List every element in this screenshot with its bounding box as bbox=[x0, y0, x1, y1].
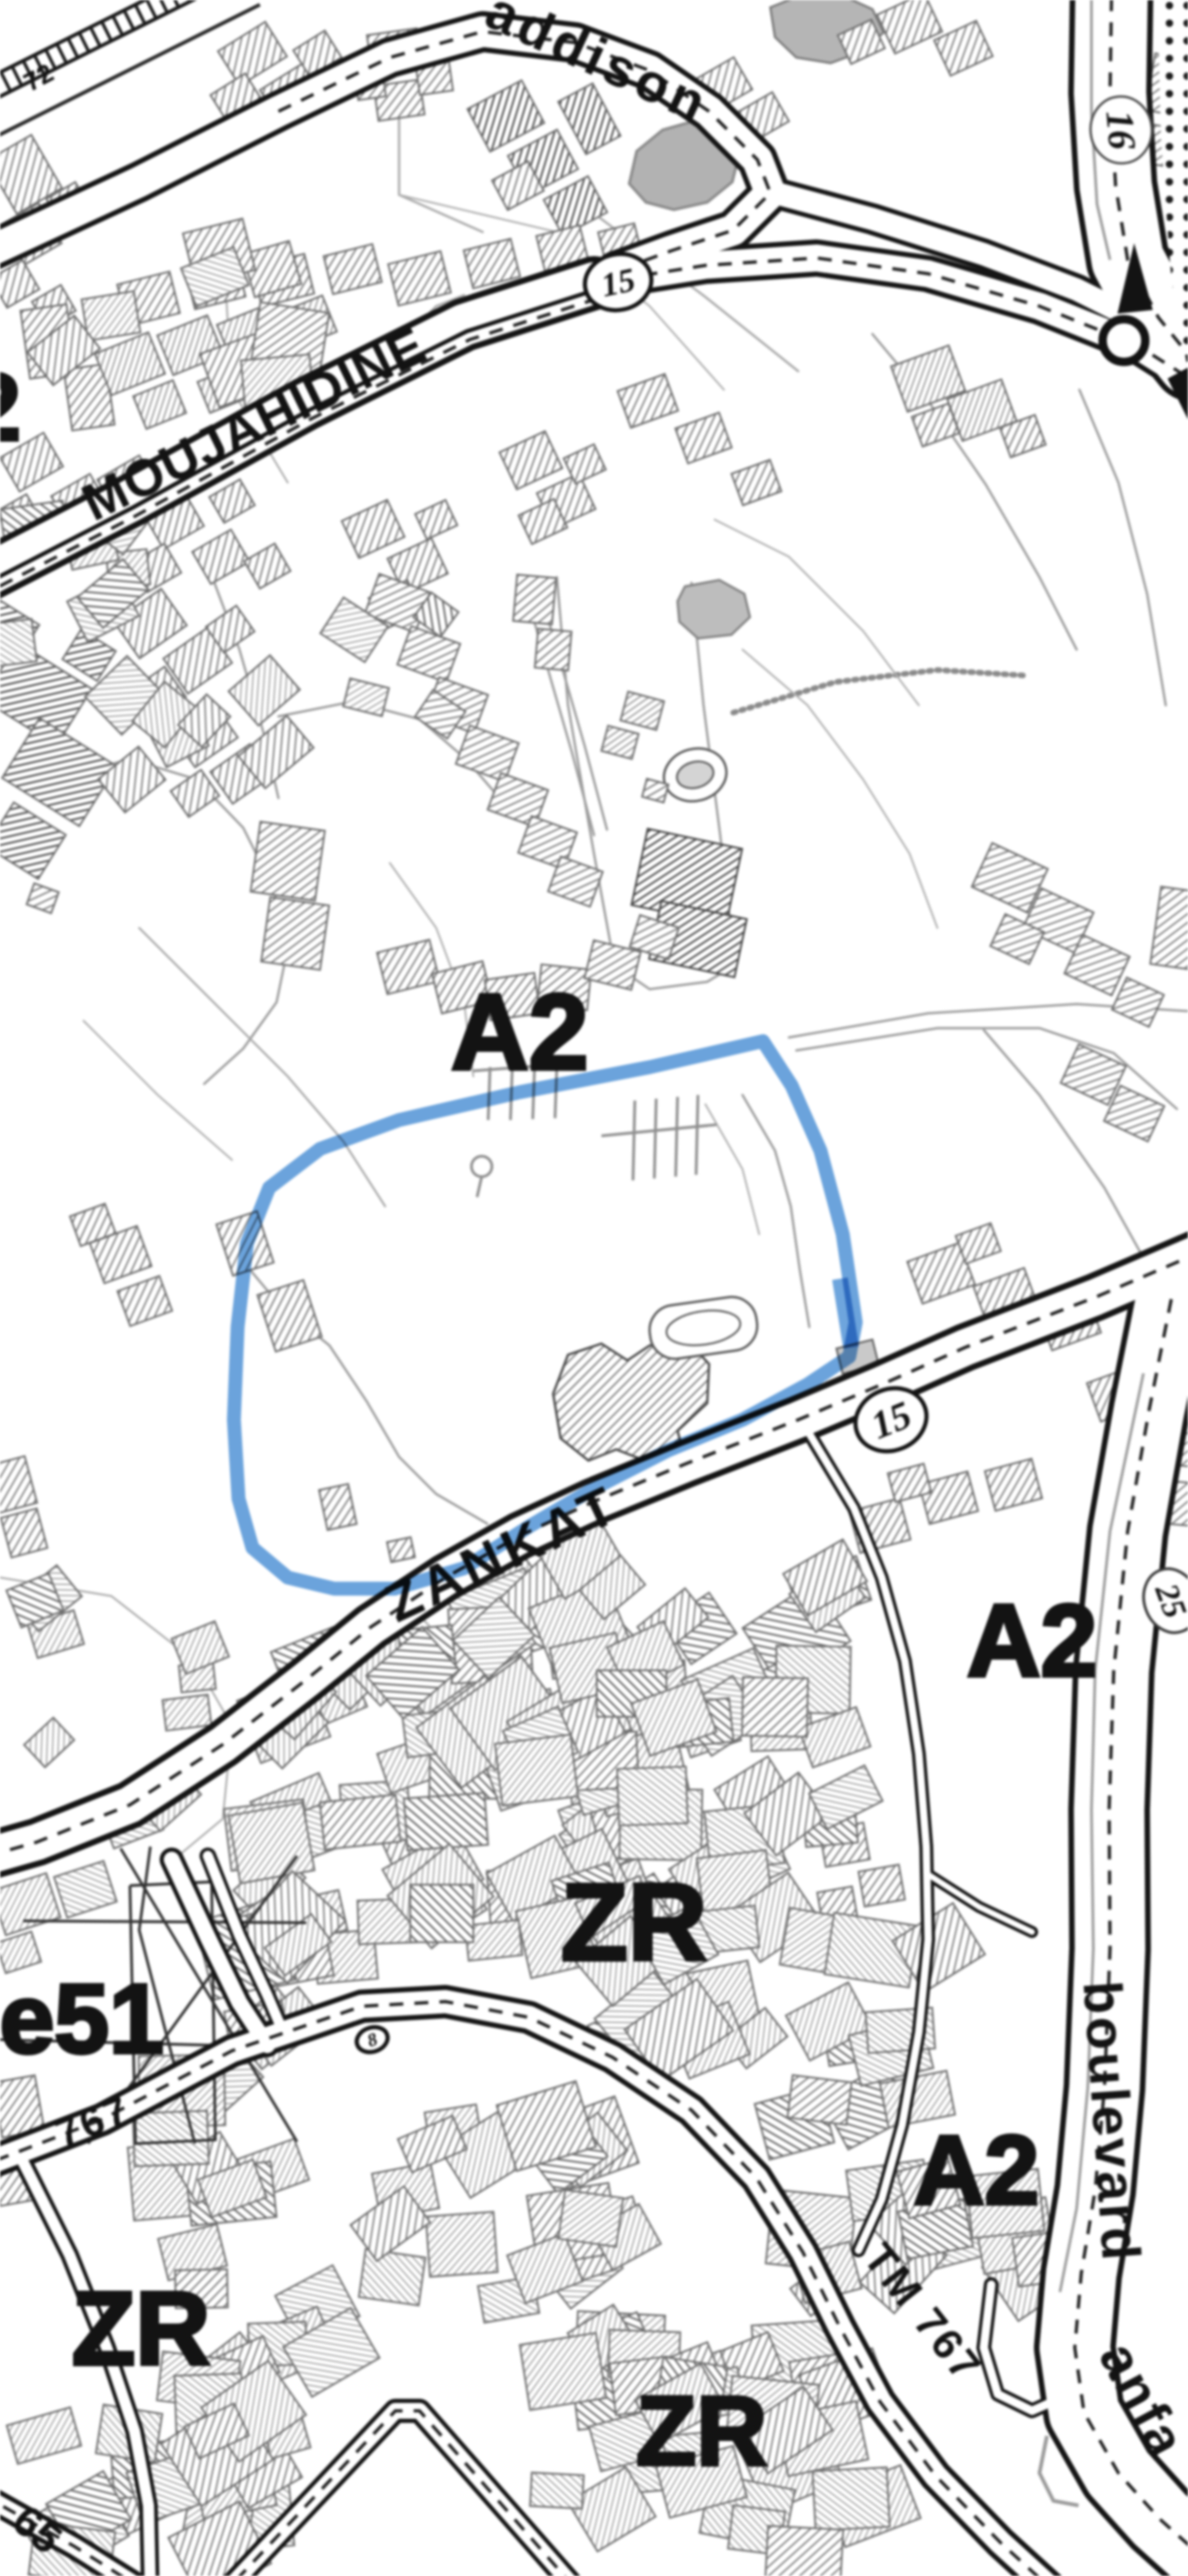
svg-text:A2: A2 bbox=[967, 1584, 1098, 1698]
svg-text:2: 2 bbox=[0, 354, 20, 460]
svg-text:A2: A2 bbox=[451, 972, 588, 1092]
svg-text:A2: A2 bbox=[913, 2116, 1039, 2225]
svg-text:ZR: ZR bbox=[561, 1861, 706, 1984]
svg-text:e51: e51 bbox=[0, 1964, 163, 2074]
svg-text:ZR: ZR bbox=[636, 2376, 767, 2486]
svg-text:ZR: ZR bbox=[71, 2271, 210, 2387]
svg-text:16: 16 bbox=[1097, 109, 1143, 151]
